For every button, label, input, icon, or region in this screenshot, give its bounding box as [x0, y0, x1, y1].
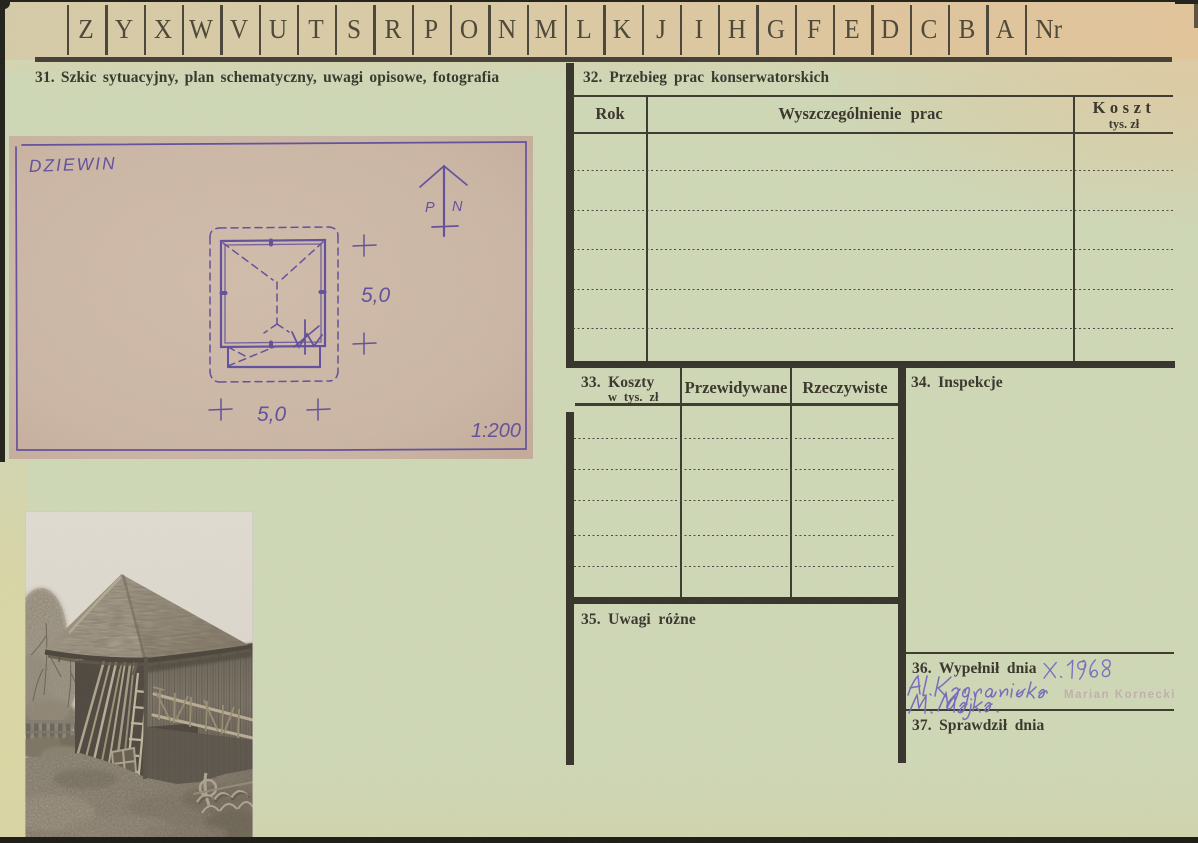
svg-text:P: P — [425, 200, 435, 216]
svg-text:5,0: 5,0 — [361, 284, 391, 307]
svg-text:1:200: 1:200 — [471, 420, 521, 442]
svg-text:N: N — [452, 199, 463, 215]
svg-text:5,0: 5,0 — [257, 403, 287, 426]
svg-text:DZIEWIN: DZIEWIN — [28, 153, 117, 176]
